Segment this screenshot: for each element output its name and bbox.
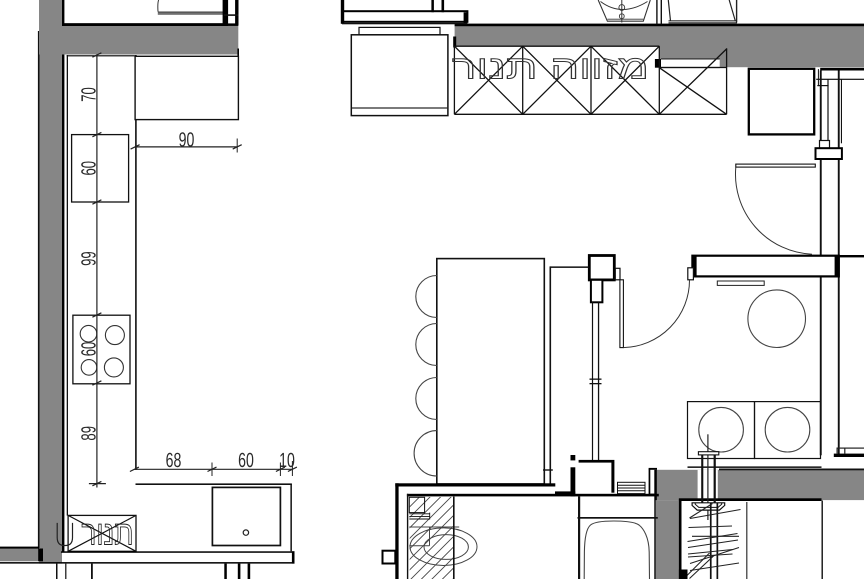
svg-text:תנור: תנור — [82, 515, 134, 553]
svg-text:68: 68 — [166, 449, 182, 472]
svg-text:60: 60 — [238, 449, 254, 472]
svg-text:מזווה תנור: מזווה תנור — [452, 49, 649, 86]
svg-text:10: 10 — [279, 449, 295, 472]
svg-text:60: 60 — [77, 342, 100, 357]
svg-text:99: 99 — [77, 251, 100, 266]
svg-text:90: 90 — [179, 128, 195, 151]
svg-text:60: 60 — [77, 161, 100, 176]
svg-text:70: 70 — [77, 87, 100, 102]
svg-text:89: 89 — [77, 426, 100, 441]
